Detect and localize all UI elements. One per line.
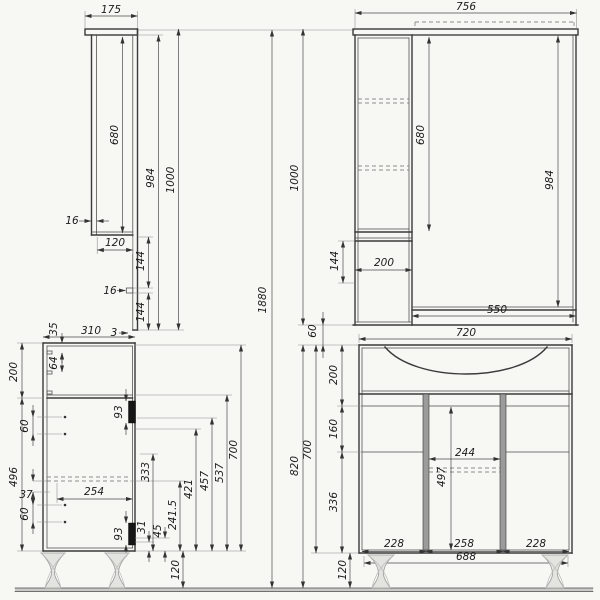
mirror-cabinet-side-view: 175 16 680 984 1000 120 144 16 144 3 — [65, 4, 184, 339]
dim-vanity-front-leg-height: 120 — [337, 560, 349, 580]
dim-vanity-base-width: 688 — [456, 551, 476, 563]
dim-vanity-pin-gap-small: 37 — [19, 489, 33, 501]
dim-vanity-hinge-lower: 93 — [113, 527, 125, 540]
furniture-dimension-drawing: 1880 175 16 680 984 1000 120 144 — [0, 0, 600, 600]
vanity-front-leg-left — [368, 555, 394, 588]
dim-vanity-h421: 421 — [183, 479, 195, 499]
dim-vanity-h45: 45 — [152, 524, 164, 538]
dim-vanity-lower-section: 496 — [8, 467, 20, 487]
dim-mirror-total-height-side: 1000 — [165, 166, 177, 193]
mirror-cabinet-front-view: 756 680 984 1000 144 — [289, 1, 578, 358]
dim-vanity-pin-offset: 35 — [48, 322, 60, 336]
dim-mirror-front-width: 756 — [456, 1, 476, 13]
dim-mirror-side-depth: 175 — [101, 4, 121, 16]
dim-vanity-door-left: 228 — [384, 538, 404, 550]
dim-vanity-inner-width: 244 — [455, 447, 475, 459]
dim-mirror-front-door-height: 680 — [415, 125, 427, 145]
dim-vanity-inner-height: 497 — [436, 467, 448, 487]
dim-vanity-door-mid: 258 — [454, 538, 474, 550]
vanity-side-leg-right — [105, 553, 129, 588]
technical-drawing-page: 1880 175 16 680 984 1000 120 144 — [0, 0, 600, 600]
dim-vanity-h241-5: 241.5 — [167, 500, 179, 530]
dim-vanity-body-height: 700 — [302, 440, 314, 460]
dim-vanity-pin-gap-upper: 60 — [19, 419, 31, 433]
dim-vanity-h31: 31 — [136, 520, 148, 533]
dim-mirror-front-total-height: 1000 — [289, 164, 301, 191]
dim-vanity-pin-gap-lower: 60 — [19, 507, 31, 521]
dim-vanity-side-leg-height: 120 — [170, 560, 182, 580]
dim-mirror-front-mirror-width: 550 — [487, 304, 507, 316]
dim-mirror-front-shelf-gap: 144 — [329, 251, 341, 271]
dim-vanity-door-right: 228 — [526, 538, 546, 550]
dim-vanity-h457: 457 — [199, 471, 211, 491]
dim-mirror-shelf-gap-upper: 144 — [135, 251, 147, 271]
floor-line — [15, 588, 593, 592]
dim-vanity-depth: 310 — [81, 325, 101, 337]
vanity-front-view: 720 200 160 336 700 820 120 — [289, 327, 572, 588]
dim-gap-mirror-to-vanity: 60 — [307, 324, 319, 338]
dim-vanity-total-height: 820 — [289, 456, 301, 476]
dim-mirror-shelf-thickness: 16 — [103, 285, 117, 297]
dim-vanity-apron-height: 200 — [328, 365, 340, 385]
dim-vanity-mid-height: 160 — [328, 419, 340, 439]
dim-vanity-top-width: 720 — [456, 327, 476, 339]
dim-mirror-shelf-gap-lower: 144 — [135, 302, 147, 322]
vanity-side-view: 310 35 64 200 496 60 37 60 254 — [8, 322, 246, 588]
dim-mirror-front-mirror-height: 984 — [544, 170, 556, 190]
dim-vanity-hinge-upper: 93 — [113, 405, 125, 418]
dim-vanity-pin-spacing: 64 — [48, 356, 60, 369]
vanity-side-leg-left — [41, 553, 65, 588]
dim-vanity-h333: 333 — [140, 462, 152, 482]
dim-mirror-front-cabinet-width: 200 — [374, 257, 394, 269]
dim-mirror-door-height-side: 680 — [109, 125, 121, 145]
dim-vanity-drawer-depth: 254 — [84, 486, 104, 498]
dim-vanity-h537: 537 — [214, 463, 226, 483]
dim-mirror-door-thickness: 16 — [65, 215, 79, 227]
dim-vanity-lower-height: 336 — [328, 492, 340, 512]
dim-overall-height: 1880 — [257, 286, 269, 313]
vanity-front-leg-right — [542, 555, 568, 588]
dim-vanity-upper-section: 200 — [8, 362, 20, 382]
dim-mirror-shelf-depth: 120 — [105, 237, 125, 249]
dim-mirror-body-height-side: 984 — [145, 168, 157, 188]
dim-vanity-h700: 700 — [228, 440, 240, 460]
